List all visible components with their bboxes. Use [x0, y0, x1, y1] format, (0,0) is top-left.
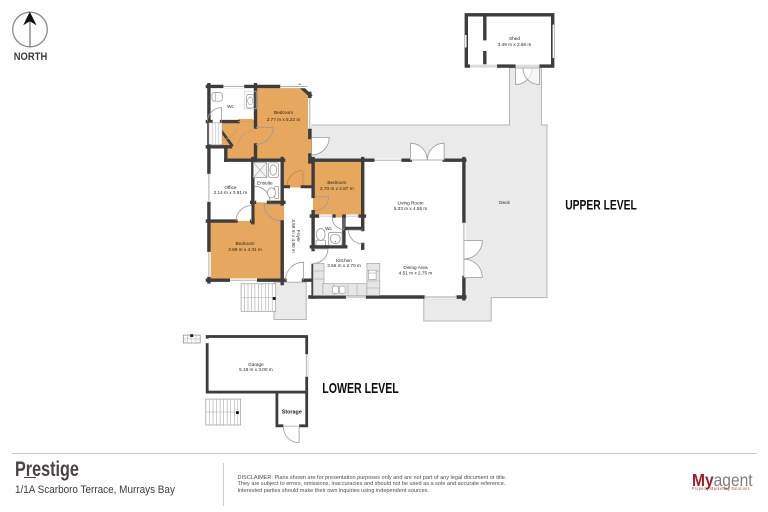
svg-text:Deck: Deck: [499, 200, 510, 205]
svg-text:Wc: Wc: [227, 104, 234, 109]
svg-text:2.14 m x 3.91 m: 2.14 m x 3.91 m: [214, 190, 248, 195]
svg-text:2.77 m x 5.22 m: 2.77 m x 5.22 m: [267, 117, 301, 122]
svg-text:5.33 m x 4.55 m: 5.33 m x 4.55 m: [394, 206, 428, 211]
svg-text:LOWER LEVEL: LOWER LEVEL: [322, 381, 399, 397]
svg-text:Wc: Wc: [325, 226, 332, 231]
svg-text:3.49 m x 2.66 m: 3.49 m x 2.66 m: [498, 42, 532, 47]
svg-text:3.69 m x 4.31 m: 3.69 m x 4.31 m: [228, 247, 262, 252]
svg-text:Bedroom: Bedroom: [235, 241, 254, 246]
svg-text:3.56 m x 2.70 m: 3.56 m x 2.70 m: [327, 263, 361, 268]
svg-text:Shed: Shed: [509, 36, 520, 41]
svg-text:NORTH: NORTH: [14, 51, 48, 63]
svg-text:5.18 m x 3.00 m: 5.18 m x 3.00 m: [239, 367, 273, 372]
svg-text:Living Room: Living Room: [397, 201, 423, 206]
svg-text:Ensuite: Ensuite: [257, 180, 273, 185]
svg-text:UPPER LEVEL: UPPER LEVEL: [565, 198, 637, 213]
svg-text:Storage: Storage: [282, 409, 302, 415]
svg-text:2.70 m x 2.87 m: 2.70 m x 2.87 m: [320, 186, 354, 191]
svg-text:Bedroom: Bedroom: [274, 110, 293, 115]
svg-text:3.58 m x 4.90 m: 3.58 m x 4.90 m: [291, 219, 296, 253]
svg-text:4.51 m x 2.75 m: 4.51 m x 2.75 m: [399, 270, 433, 275]
svg-text:Bedroom: Bedroom: [327, 180, 346, 185]
